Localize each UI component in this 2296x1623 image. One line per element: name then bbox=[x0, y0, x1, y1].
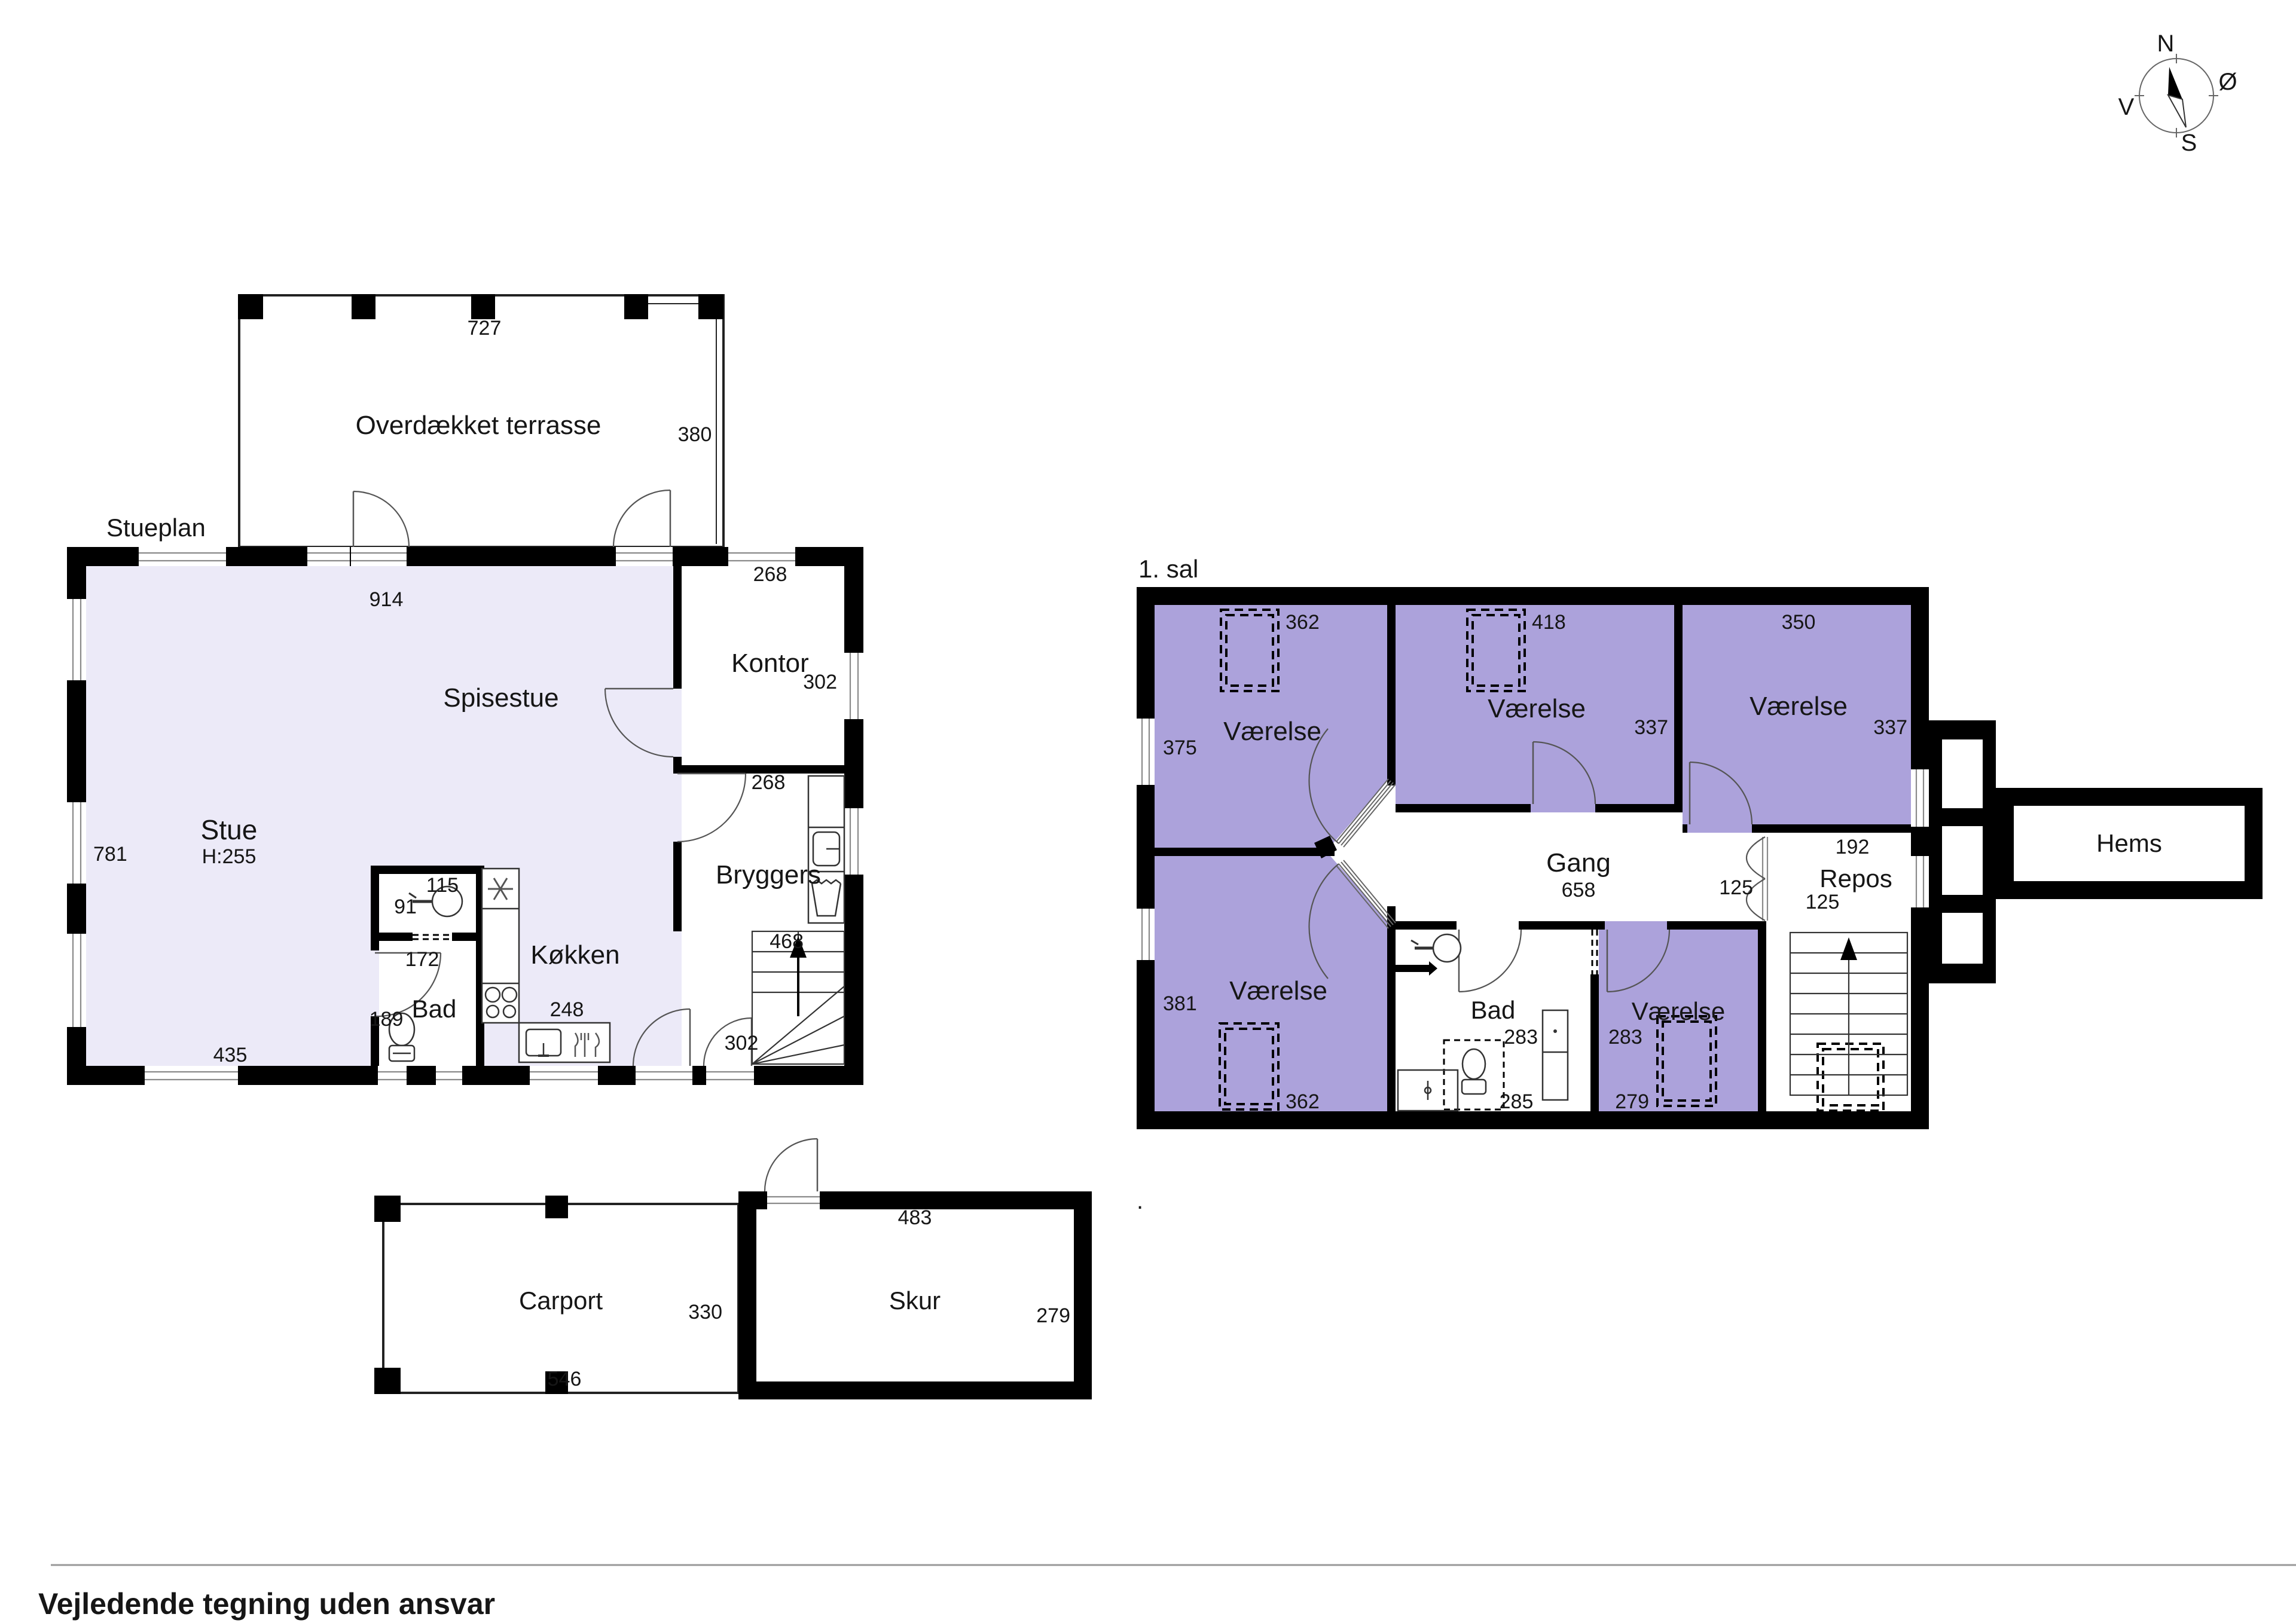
stue-label: Stue bbox=[201, 814, 258, 845]
bryggers-bottom-dim: 302 bbox=[725, 1032, 759, 1055]
compass-south: S bbox=[2181, 130, 2197, 156]
spisestue-label: Spisestue bbox=[443, 683, 558, 713]
terrace-post bbox=[352, 294, 375, 319]
bryggers-cabinets bbox=[808, 776, 844, 923]
kitchen-tall-cabinets bbox=[482, 869, 519, 1023]
gang-length-dim: 658 bbox=[1562, 879, 1596, 901]
window bbox=[1911, 852, 1929, 911]
terrace-door bbox=[613, 490, 673, 566]
window bbox=[67, 799, 86, 887]
kontor-right-dim: 302 bbox=[803, 671, 837, 693]
kontor-top-dim: 268 bbox=[753, 563, 787, 586]
room-bm-left-dim: 283 bbox=[1608, 1026, 1642, 1049]
window bbox=[67, 595, 86, 684]
kokken-counter-dim: 248 bbox=[550, 998, 584, 1021]
gang-label: Gang bbox=[1546, 848, 1611, 878]
stue-height-label: H:255 bbox=[202, 845, 257, 868]
bad-door-dim: 172 bbox=[405, 948, 439, 971]
window bbox=[1137, 905, 1155, 964]
room-tr-top-dim: 350 bbox=[1782, 611, 1816, 634]
window bbox=[1137, 715, 1155, 788]
room-tm-wardrobe-dim: 418 bbox=[1532, 611, 1566, 634]
compass-east: Ø bbox=[2218, 69, 2237, 95]
disclaimer-text: Vejledende tegning uden ansvar bbox=[38, 1587, 495, 1621]
hems-annex: Hems bbox=[1929, 720, 2263, 983]
kitchen-counter bbox=[519, 1023, 610, 1062]
bryggers-top-dim: 268 bbox=[752, 771, 786, 794]
spisestue-top-dim: 914 bbox=[370, 588, 404, 611]
bad-height-dim: 189 bbox=[370, 1008, 404, 1031]
room-tl-wardrobe-dim: 362 bbox=[1286, 611, 1320, 634]
ground-floor-plan: Overdækket terrasse 727 380 bbox=[67, 294, 863, 1085]
bath-cabinet bbox=[1543, 1010, 1568, 1100]
room-bl-label: Værelse bbox=[1229, 976, 1327, 1005]
hems-label: Hems bbox=[2096, 829, 2162, 857]
repos-top-dim: 192 bbox=[1836, 836, 1870, 858]
carport-label: Carport bbox=[519, 1286, 603, 1315]
ground-floor-title: Stueplan bbox=[106, 514, 206, 542]
terrace: Overdækket terrasse 727 380 bbox=[238, 294, 723, 547]
first-floor-plan: Hems 1. sal Værelse 362 375 Værelse 418 … bbox=[1137, 555, 2263, 1129]
wc-width-dim: 115 bbox=[426, 874, 459, 897]
bad-first-bottom-dim: 285 bbox=[1500, 1090, 1534, 1113]
wc-height-dim: 91 bbox=[394, 895, 417, 918]
repos-width-dim: 125 bbox=[1806, 891, 1840, 913]
room-bm-bottom-dim: 279 bbox=[1615, 1090, 1649, 1113]
terrace-post bbox=[698, 294, 723, 319]
room-tl-left-dim: 375 bbox=[1163, 736, 1197, 759]
kokken-label: Køkken bbox=[530, 940, 619, 970]
window bbox=[141, 1066, 242, 1085]
skur: 483 Skur 279 bbox=[738, 1139, 1092, 1399]
compass-west: V bbox=[2118, 94, 2135, 120]
compass-north: N bbox=[2157, 30, 2175, 57]
terrace-depth-dim: 380 bbox=[678, 423, 712, 446]
terrace-post bbox=[471, 294, 495, 319]
window bbox=[135, 547, 230, 566]
window bbox=[526, 1066, 602, 1085]
skur-top-dim: 483 bbox=[898, 1206, 932, 1229]
skur-right-dim: 279 bbox=[1036, 1304, 1070, 1327]
stray-dot: . bbox=[1137, 1188, 1143, 1214]
stue-left-dim: 781 bbox=[93, 843, 127, 866]
room-bl-left-dim: 381 bbox=[1163, 992, 1197, 1015]
window bbox=[304, 547, 353, 566]
footer: Vejledende tegning uden ansvar bbox=[38, 1565, 2296, 1621]
skur-label: Skur bbox=[889, 1286, 941, 1315]
terrace-width-dim: 727 bbox=[468, 317, 502, 340]
room-tm-label: Værelse bbox=[1488, 694, 1586, 723]
kontor-label: Kontor bbox=[731, 649, 809, 678]
bad-first-right-dim: 283 bbox=[1504, 1026, 1538, 1049]
skur-door bbox=[765, 1139, 820, 1209]
room-tl-label: Værelse bbox=[1223, 717, 1321, 746]
window bbox=[844, 805, 863, 878]
room-tr-right-dim: 337 bbox=[1873, 716, 1907, 739]
terrace-label: Overdækket terrasse bbox=[356, 411, 602, 440]
first-floor-title: 1. sal bbox=[1138, 555, 1198, 583]
gang-width-dim: 125 bbox=[1719, 876, 1753, 899]
repos-label: Repos bbox=[1819, 864, 1892, 893]
terrace-door bbox=[351, 491, 409, 566]
floor-plan-svg: Overdækket terrasse 727 380 bbox=[0, 0, 2296, 1623]
outbuildings-plan: Carport 330 546 483 Skur 279 . bbox=[374, 1139, 1143, 1399]
room-bm-label: Værelse bbox=[1632, 997, 1725, 1025]
window bbox=[844, 649, 863, 723]
compass-needle-icon bbox=[2168, 67, 2186, 127]
floor-plan-page: Overdækket terrasse 727 380 bbox=[0, 0, 2296, 1623]
bad-first-label: Bad bbox=[1471, 996, 1516, 1024]
carport: Carport 330 546 bbox=[374, 1196, 738, 1394]
carport-bottom-dim: 546 bbox=[548, 1368, 582, 1390]
bryggers-label: Bryggers bbox=[716, 860, 821, 890]
terrace-post bbox=[238, 294, 263, 319]
window bbox=[432, 1066, 466, 1085]
room-bl-bottom-dim: 362 bbox=[1286, 1090, 1320, 1113]
bryggers-mid-dim: 468 bbox=[770, 930, 804, 953]
room-tm-right-dim: 337 bbox=[1634, 716, 1668, 739]
carport-right-dim: 330 bbox=[688, 1301, 722, 1324]
window bbox=[67, 930, 86, 1031]
room-tr-label: Værelse bbox=[1750, 692, 1848, 721]
window bbox=[374, 1066, 410, 1085]
terrace-post bbox=[624, 294, 648, 319]
stue-bottom-dim: 435 bbox=[213, 1044, 248, 1066]
window bbox=[1911, 766, 1929, 830]
compass: N Ø S V bbox=[2118, 30, 2237, 156]
bad-label: Bad bbox=[412, 995, 457, 1023]
